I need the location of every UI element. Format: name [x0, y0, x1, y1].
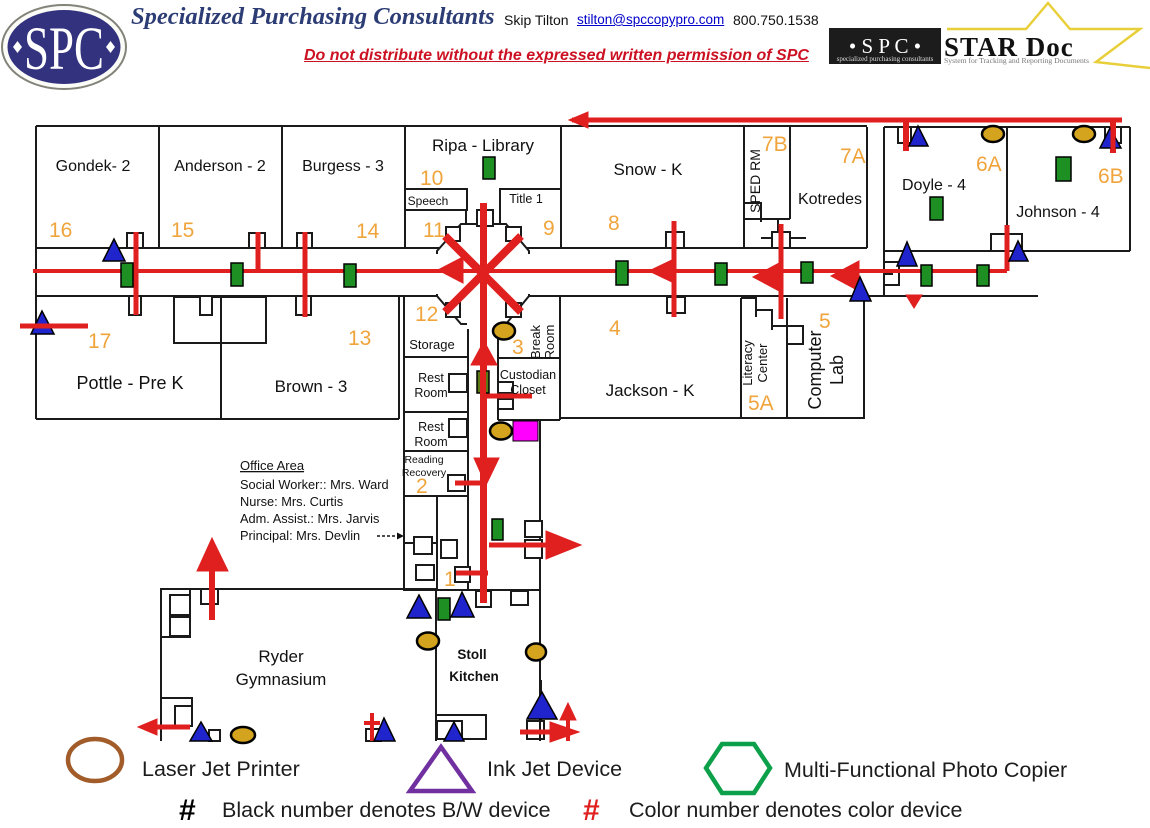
svg-text:Jackson - K: Jackson - K — [606, 381, 695, 400]
svg-text:7A: 7A — [840, 145, 866, 168]
svg-text:Reading: Reading — [404, 454, 443, 466]
svg-text:4: 4 — [609, 317, 621, 340]
svg-text:Speech: Speech — [408, 194, 449, 208]
svg-text:6A: 6A — [976, 153, 1002, 176]
svg-text:Anderson - 2: Anderson - 2 — [174, 158, 266, 175]
svg-text:Kotredes: Kotredes — [798, 191, 862, 208]
svg-text:Burgess - 3: Burgess - 3 — [302, 158, 384, 175]
svg-text:Custodian: Custodian — [500, 368, 556, 382]
svg-text:Black number denotes B/W devic: Black number denotes B/W device — [222, 798, 551, 822]
svg-text:16: 16 — [49, 219, 72, 242]
svg-text:Multi-Functional Photo Copier: Multi-Functional Photo Copier — [784, 758, 1067, 782]
svg-text:Break: Break — [528, 325, 543, 359]
svg-text:Room: Room — [414, 386, 447, 400]
svg-text:Room: Room — [542, 325, 557, 360]
svg-text:Kitchen: Kitchen — [449, 669, 499, 684]
svg-text:Rest: Rest — [418, 371, 444, 385]
svg-text:2: 2 — [416, 475, 428, 498]
svg-text:Center: Center — [755, 343, 770, 383]
svg-text:Principal: Mrs. Devlin: Principal: Mrs. Devlin — [240, 528, 360, 543]
svg-text:Room: Room — [414, 435, 447, 449]
svg-text:#: # — [179, 794, 196, 827]
svg-text:Closet: Closet — [510, 383, 546, 397]
svg-text:6B: 6B — [1098, 165, 1124, 188]
svg-text:Color number denotes color dev: Color number denotes color device — [629, 798, 962, 822]
svg-text:Stoll: Stoll — [457, 647, 486, 662]
svg-text:5: 5 — [819, 310, 831, 333]
svg-text:7B: 7B — [762, 133, 788, 156]
svg-text:Laser Jet Printer: Laser Jet Printer — [142, 757, 300, 781]
svg-text:14: 14 — [356, 220, 380, 243]
svg-text:Gymnasium: Gymnasium — [236, 670, 327, 689]
svg-text:Office Area: Office Area — [240, 458, 305, 473]
svg-text:10: 10 — [420, 167, 443, 190]
svg-text:Lab: Lab — [827, 355, 847, 385]
svg-text:8: 8 — [608, 212, 620, 235]
svg-text:15: 15 — [171, 219, 194, 242]
svg-text:Title 1: Title 1 — [509, 192, 543, 206]
svg-text:Snow - K: Snow - K — [614, 160, 684, 179]
svg-text:Gondek- 2: Gondek- 2 — [56, 158, 131, 175]
svg-text:Doyle - 4: Doyle - 4 — [902, 177, 966, 194]
svg-text:9: 9 — [543, 217, 555, 240]
svg-text:Johnson - 4: Johnson - 4 — [1016, 204, 1100, 221]
svg-text:Social Worker:: Mrs. Ward: Social Worker:: Mrs. Ward — [240, 477, 389, 492]
svg-text:SPED RM: SPED RM — [747, 149, 763, 213]
svg-text:Ink Jet Device: Ink Jet Device — [487, 757, 622, 781]
svg-text:#: # — [583, 794, 600, 827]
svg-text:Pottle - Pre K: Pottle - Pre K — [76, 373, 183, 393]
svg-text:Literacy: Literacy — [740, 340, 755, 386]
svg-text:3: 3 — [512, 336, 524, 359]
svg-text:Ryder: Ryder — [258, 647, 304, 666]
svg-text:Computer: Computer — [805, 330, 825, 409]
svg-text:17: 17 — [88, 330, 111, 353]
svg-text:5A: 5A — [748, 392, 774, 415]
svg-text:13: 13 — [348, 327, 371, 350]
svg-text:1: 1 — [444, 568, 456, 591]
svg-text:Ripa - Library: Ripa - Library — [432, 136, 535, 155]
svg-text:Rest: Rest — [418, 420, 444, 434]
svg-text:Adm. Assist.: Mrs. Jarvis: Adm. Assist.: Mrs. Jarvis — [240, 511, 379, 526]
svg-text:Storage: Storage — [409, 337, 455, 352]
svg-text:12: 12 — [415, 303, 438, 326]
svg-text:Nurse: Mrs. Curtis: Nurse: Mrs. Curtis — [240, 494, 343, 509]
svg-text:11: 11 — [423, 219, 445, 242]
svg-text:Brown - 3: Brown - 3 — [275, 377, 348, 396]
